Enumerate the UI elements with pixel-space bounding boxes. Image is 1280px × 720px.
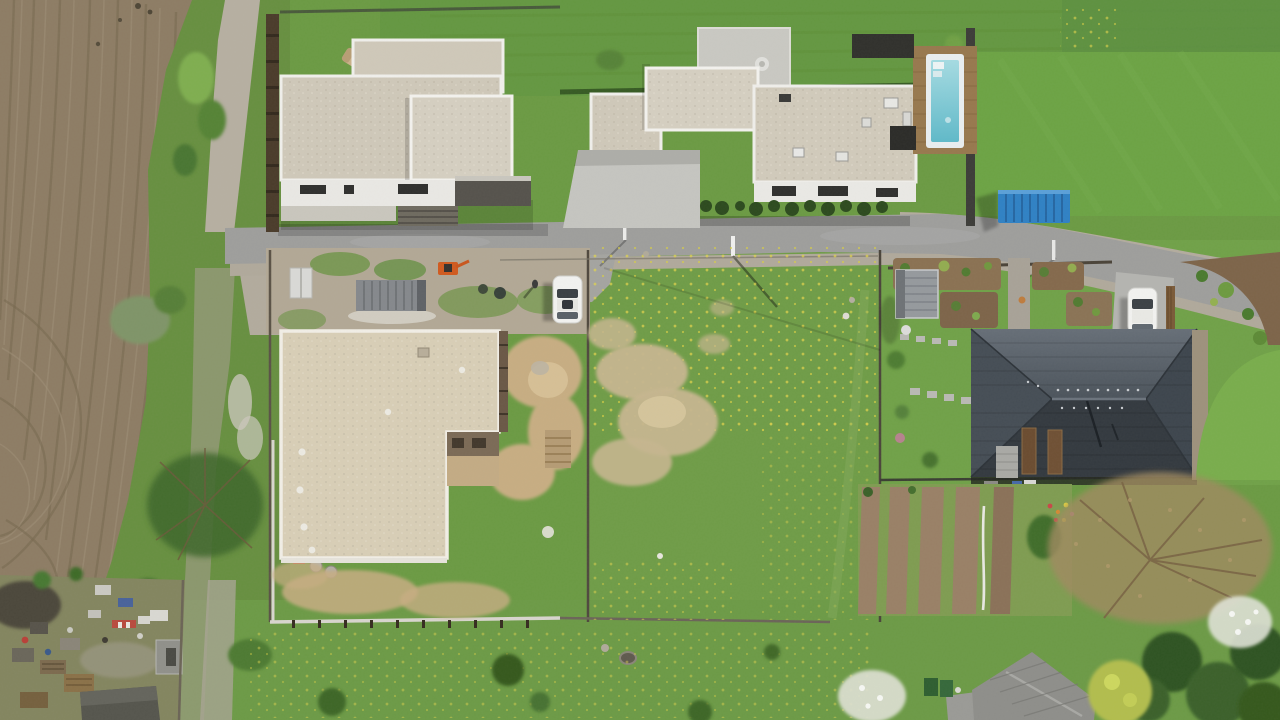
photo-grain: [0, 0, 1280, 720]
aerial-photo: [0, 0, 1280, 720]
